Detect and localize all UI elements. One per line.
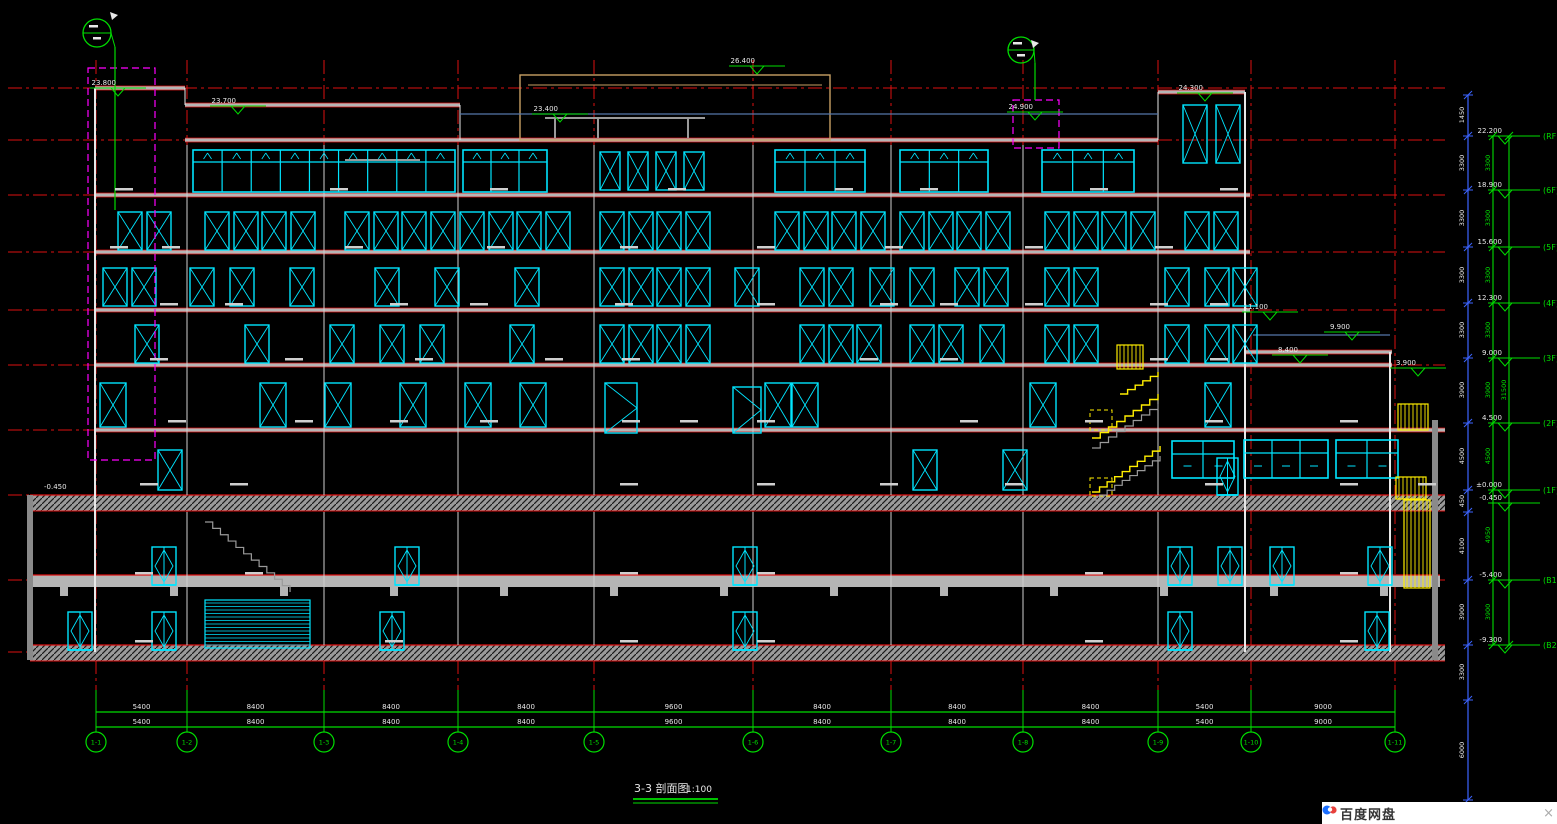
room-label-mark	[330, 188, 348, 191]
room-label-mark	[880, 483, 898, 486]
room-label-mark	[285, 358, 303, 361]
room-label-mark	[757, 246, 775, 249]
elevation-value: 11.100	[1244, 303, 1269, 311]
grid-bubble-label: 1-4	[453, 739, 464, 747]
cad-viewer: 26.40023.40023.70023.80024.90024.30011.1…	[0, 0, 1557, 824]
room-label-mark	[160, 303, 178, 306]
level-value: 9.000	[1482, 349, 1502, 357]
floor-tag: (2F)	[1543, 419, 1557, 428]
room-label-mark	[390, 420, 408, 423]
grid-bubble-label: 1-7	[886, 739, 897, 747]
room-label-mark	[835, 188, 853, 191]
room-label-mark	[880, 303, 898, 306]
axis-dim-value: 8400	[948, 703, 966, 711]
elevation-value: 8.400	[1278, 346, 1298, 354]
dim-value: 3300	[1458, 322, 1466, 339]
room-label-mark	[385, 640, 403, 643]
dim-value: 6000	[1458, 742, 1466, 759]
room-label-mark	[1205, 420, 1223, 423]
room-label-mark	[1085, 572, 1103, 575]
floor-tag: (4F)	[1543, 299, 1557, 308]
room-label-mark	[1340, 420, 1358, 423]
room-label-mark	[960, 420, 978, 423]
room-label-mark	[1025, 303, 1043, 306]
dim-value: 450	[1458, 495, 1466, 507]
bubble-text-mark	[89, 25, 98, 28]
floor-slab	[95, 308, 1250, 312]
room-label-mark	[1025, 246, 1043, 249]
canvas-background	[0, 0, 1557, 824]
axis-dim-value: 9600	[665, 703, 683, 711]
dim-value: 4950	[1484, 527, 1492, 544]
floor-tag: (RF)	[1543, 132, 1557, 141]
dim-value: 3300	[1484, 155, 1492, 172]
downstand-beam	[940, 587, 948, 596]
axis-dim-value: 9000	[1314, 703, 1332, 711]
room-label-mark	[668, 188, 686, 191]
dim-value: 3300	[1458, 210, 1466, 227]
axis-dim-value: 8400	[517, 718, 535, 726]
room-label-mark	[620, 246, 638, 249]
dim-value: 4100	[1458, 538, 1466, 555]
axis-dim-value: 8400	[813, 703, 831, 711]
axis-dim-value: 5400	[133, 703, 151, 711]
grid-bubble-label: 1-8	[1018, 739, 1029, 747]
room-label-mark	[940, 358, 958, 361]
floor-slab	[95, 428, 1445, 432]
room-label-mark	[135, 640, 153, 643]
level-value: -5.400	[1479, 571, 1502, 579]
floor-tag: (1F)	[1543, 486, 1557, 495]
downstand-beam	[170, 587, 178, 596]
room-label-mark	[757, 640, 775, 643]
elevation-value: 24.900	[1009, 103, 1034, 111]
grid-bubble-label: 1-2	[182, 739, 193, 747]
section-drawing: 26.40023.40023.70023.80024.90024.30011.1…	[0, 0, 1557, 824]
room-label-mark	[490, 188, 508, 191]
room-label-mark	[225, 303, 243, 306]
level-value: 15.600	[1478, 238, 1503, 246]
downstand-beam	[1380, 587, 1388, 596]
drawing-title: 3-3 剖面图	[634, 781, 688, 795]
axis-dim-value: 8400	[948, 718, 966, 726]
floor-tag: (B1)	[1543, 576, 1557, 585]
room-label-mark	[1155, 246, 1173, 249]
dim-value: 3300	[1458, 267, 1466, 284]
grid-bubble-label: 1-1	[91, 739, 102, 747]
axis-dim-value: 8400	[247, 703, 265, 711]
room-label-mark	[1090, 188, 1108, 191]
room-label-mark	[135, 572, 153, 575]
room-label-mark	[245, 572, 263, 575]
dim-value: 3900	[1484, 382, 1492, 399]
room-label-mark	[885, 246, 903, 249]
room-label-mark	[230, 483, 248, 486]
room-label-mark	[1220, 188, 1238, 191]
room-label-mark	[1340, 572, 1358, 575]
axis-dim-value: 5400	[1196, 718, 1214, 726]
room-label-mark	[1210, 303, 1228, 306]
room-label-mark	[415, 358, 433, 361]
room-label-mark	[1150, 358, 1168, 361]
floor-slab	[95, 193, 1250, 197]
room-label-mark	[115, 188, 133, 191]
grade-elevation-value: -0.450	[44, 483, 67, 491]
room-label-mark	[487, 246, 505, 249]
baidu-netdisk-widget[interactable]: 百度网盘 ×	[1322, 802, 1557, 824]
bubble-text-mark	[1017, 54, 1025, 57]
dim-value: 3300	[1458, 664, 1466, 681]
dim-value: 3900	[1458, 604, 1466, 621]
dim-value: 3300	[1484, 322, 1492, 339]
room-label-mark	[1340, 640, 1358, 643]
floor-tag: (3F)	[1543, 354, 1557, 363]
dim-value: 3900	[1484, 604, 1492, 621]
level-value: 12.300	[1478, 294, 1503, 302]
room-label-mark	[295, 420, 313, 423]
room-label-mark	[1210, 358, 1228, 361]
elevation-value: 24.300	[1179, 84, 1204, 92]
grid-bubble-label: 1-9	[1153, 739, 1164, 747]
grid-bubble-label: 1-6	[748, 739, 759, 747]
axis-dim-value: 8400	[1082, 718, 1100, 726]
bubble-text-mark	[1013, 42, 1022, 45]
level-value: ±0.000	[1476, 481, 1502, 489]
room-label-mark	[1085, 420, 1103, 423]
elevation-value: 23.700	[212, 97, 237, 105]
dim-value: 3300	[1458, 155, 1466, 172]
downstand-beam	[720, 587, 728, 596]
room-label-mark	[1205, 483, 1223, 486]
axis-dim-value: 8400	[813, 718, 831, 726]
room-label-mark	[620, 572, 638, 575]
room-label-mark	[757, 303, 775, 306]
downstand-beam	[280, 587, 288, 596]
axis-dim-value: 9000	[1314, 718, 1332, 726]
elevation-value: 26.400	[731, 57, 756, 65]
room-label-mark	[615, 303, 633, 306]
bubble-text-mark	[93, 37, 101, 40]
room-label-mark	[150, 358, 168, 361]
downstand-beam	[1270, 587, 1278, 596]
floor-tag: (6F)	[1543, 186, 1557, 195]
axis-dim-value: 8400	[382, 718, 400, 726]
downstand-beam	[1160, 587, 1168, 596]
room-label-mark	[140, 483, 158, 486]
level-value: 18.900	[1478, 181, 1503, 189]
axis-dim-value: 9600	[665, 718, 683, 726]
room-label-mark	[757, 572, 775, 575]
floor-slab	[95, 363, 1392, 367]
room-label-mark	[110, 246, 128, 249]
room-label-mark	[620, 483, 638, 486]
room-label-mark	[1418, 483, 1436, 486]
dim-value: 3300	[1484, 267, 1492, 284]
axis-dim-value: 8400	[382, 703, 400, 711]
downstand-beam	[830, 587, 838, 596]
elevation-value: 9.900	[1330, 323, 1350, 331]
grid-bubble-label: 1-5	[589, 739, 600, 747]
room-label-mark	[757, 420, 775, 423]
axis-dim-value: 8400	[247, 718, 265, 726]
grid-bubble-label: 1-11	[1388, 739, 1403, 747]
room-label-mark	[470, 303, 488, 306]
floor-tag: (B2)	[1543, 641, 1557, 650]
grid-bubble-label: 1-10	[1244, 739, 1259, 747]
close-icon[interactable]: ×	[1543, 806, 1557, 821]
room-label-mark	[622, 358, 640, 361]
room-label-mark	[545, 358, 563, 361]
room-label-mark	[1340, 483, 1358, 486]
axis-dim-value: 5400	[1196, 703, 1214, 711]
dim-value: 1450	[1458, 107, 1466, 124]
level-value: 22.200	[1478, 127, 1503, 135]
dim-value: 3900	[1458, 382, 1466, 399]
elevation-value: 23.400	[534, 105, 559, 113]
downstand-beam	[390, 587, 398, 596]
room-label-mark	[620, 640, 638, 643]
room-label-mark	[940, 303, 958, 306]
dim-value: 4500	[1458, 448, 1466, 465]
floor-slab	[1245, 350, 1392, 354]
ground-hatch-band	[30, 495, 1445, 511]
dim-value: 31500	[1500, 380, 1508, 401]
downstand-beam	[610, 587, 618, 596]
grid-bubble-label: 1-3	[319, 739, 330, 747]
room-label-mark	[1085, 640, 1103, 643]
dim-value: 3300	[1484, 210, 1492, 227]
level-value: 4.500	[1482, 414, 1502, 422]
axis-dim-value: 5400	[133, 718, 151, 726]
room-label-mark	[680, 420, 698, 423]
elevation-value: 23.800	[92, 79, 117, 87]
downstand-beam	[60, 587, 68, 596]
downstand-beam	[500, 587, 508, 596]
drawing-scale: 1:100	[686, 785, 712, 795]
room-label-mark	[622, 420, 640, 423]
room-label-mark	[860, 358, 878, 361]
room-label-mark	[345, 246, 363, 249]
room-label-mark	[480, 420, 498, 423]
floor-tag: (5F)	[1543, 243, 1557, 252]
widget-title: 百度网盘	[1340, 804, 1396, 823]
downstand-beam	[1050, 587, 1058, 596]
room-label-mark	[168, 420, 186, 423]
room-label-mark	[1150, 303, 1168, 306]
elevation-value: 3.900	[1396, 359, 1416, 367]
axis-dim-value: 8400	[517, 703, 535, 711]
level-value: -0.450	[1479, 494, 1502, 502]
axis-dim-value: 8400	[1082, 703, 1100, 711]
room-label-mark	[1005, 483, 1023, 486]
dim-value: 4500	[1484, 448, 1492, 465]
room-label-mark	[390, 303, 408, 306]
room-label-mark	[757, 483, 775, 486]
level-value: -9.300	[1479, 636, 1502, 644]
room-label-mark	[920, 188, 938, 191]
room-label-mark	[162, 246, 180, 249]
